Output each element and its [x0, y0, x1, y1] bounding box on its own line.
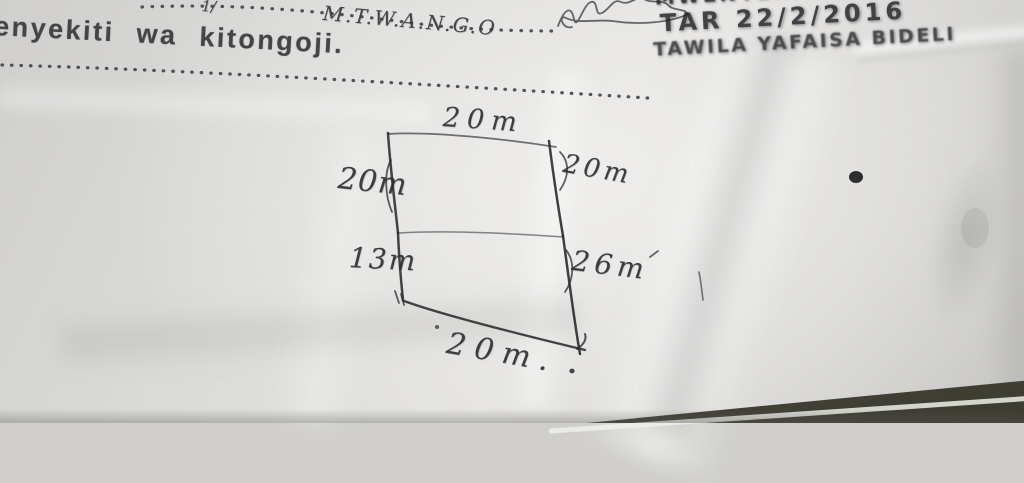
ink-blot — [849, 171, 863, 183]
faint-smudge — [961, 208, 989, 248]
sketch-middle-divider — [399, 232, 563, 237]
period-dot — [569, 369, 574, 374]
dotted-line-2 — [2, 65, 648, 98]
sketch-top-edge — [388, 133, 556, 147]
dim-label-left-upper: 20m — [336, 161, 409, 203]
photo-of-paper-document: { "page": { "printed_header": "enyekiti … — [0, 0, 1024, 423]
stray-pen-stroke — [699, 272, 703, 300]
dim-label-top: 20m — [442, 102, 525, 139]
sketch-outline — [386, 133, 703, 354]
dim-label-left-lower: 13m — [348, 241, 418, 278]
handwritten-fragment: 1/ — [201, 0, 217, 16]
tick-mark-26m — [650, 251, 658, 257]
stray-dot — [435, 325, 439, 329]
